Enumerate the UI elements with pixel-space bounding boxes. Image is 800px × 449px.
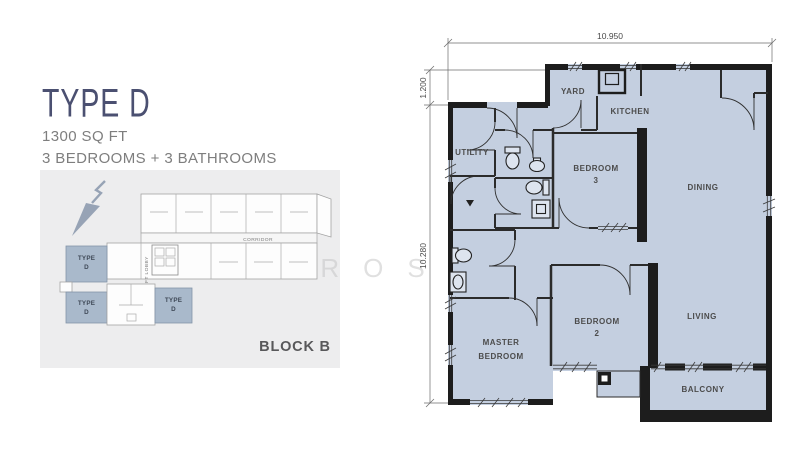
svg-text:D: D	[84, 264, 89, 271]
keyplan-top-wing	[141, 194, 331, 237]
room-label-master: MASTER	[483, 338, 520, 347]
toilet-icon	[526, 180, 549, 195]
keyplan-corridor: CORRIDOR	[141, 233, 317, 243]
lift-label: LIFT LOBBY	[144, 256, 150, 288]
svg-text:3: 3	[594, 176, 599, 185]
room-label-yard: YARD	[561, 87, 585, 96]
dimension-left-lower: 10.280	[418, 243, 428, 269]
keyplan-middle-unit	[107, 284, 155, 325]
stove-icon	[599, 70, 625, 93]
svg-text:D: D	[84, 309, 89, 316]
room-label-dining: DINING	[688, 183, 719, 192]
toilet-icon	[452, 248, 472, 263]
dimension-left-upper: 1.200	[418, 77, 428, 99]
keyplan-unit-1: TYPE D	[66, 246, 107, 282]
svg-text:D: D	[171, 306, 176, 313]
room-label-kitchen: KITCHEN	[610, 107, 649, 116]
corridor-label: CORRIDOR	[243, 237, 273, 243]
north-arrow-icon	[72, 181, 105, 236]
ac-ledge	[597, 371, 640, 397]
svg-text:TYPE: TYPE	[165, 297, 182, 304]
room-label-bedroom3: BEDROOM	[573, 164, 618, 173]
block-label: BLOCK B	[259, 339, 331, 355]
floorplan: 10.950 1.200 10.280	[418, 31, 776, 422]
sink-icon	[450, 272, 466, 292]
keyplan: CORRIDOR LIFT LOBBY	[60, 181, 331, 355]
shower-icon	[532, 200, 550, 218]
room-label-balcony: BALCONY	[681, 385, 724, 394]
dimension-top: 10.950	[597, 31, 623, 41]
page: TYPE D 1300 SQ FT 3 BEDROOMS + 3 BATHROO…	[0, 0, 800, 449]
svg-text:TYPE: TYPE	[78, 300, 95, 307]
room-label-bedroom2: BEDROOM	[574, 317, 619, 326]
svg-text:TYPE: TYPE	[78, 255, 95, 262]
room-label-utility: UTILITY	[455, 148, 489, 157]
drawing-layer: AMPROSE	[0, 0, 800, 449]
toilet-icon	[505, 147, 520, 169]
lift-core	[152, 245, 178, 275]
keyplan-step	[60, 282, 72, 292]
keyplan-unit-3: TYPE D	[155, 288, 192, 323]
svg-text:BEDROOM: BEDROOM	[478, 352, 523, 361]
svg-text:2: 2	[595, 329, 600, 338]
room-label-living: LIVING	[687, 312, 717, 321]
keyplan-unit-2: TYPE D	[66, 292, 107, 323]
